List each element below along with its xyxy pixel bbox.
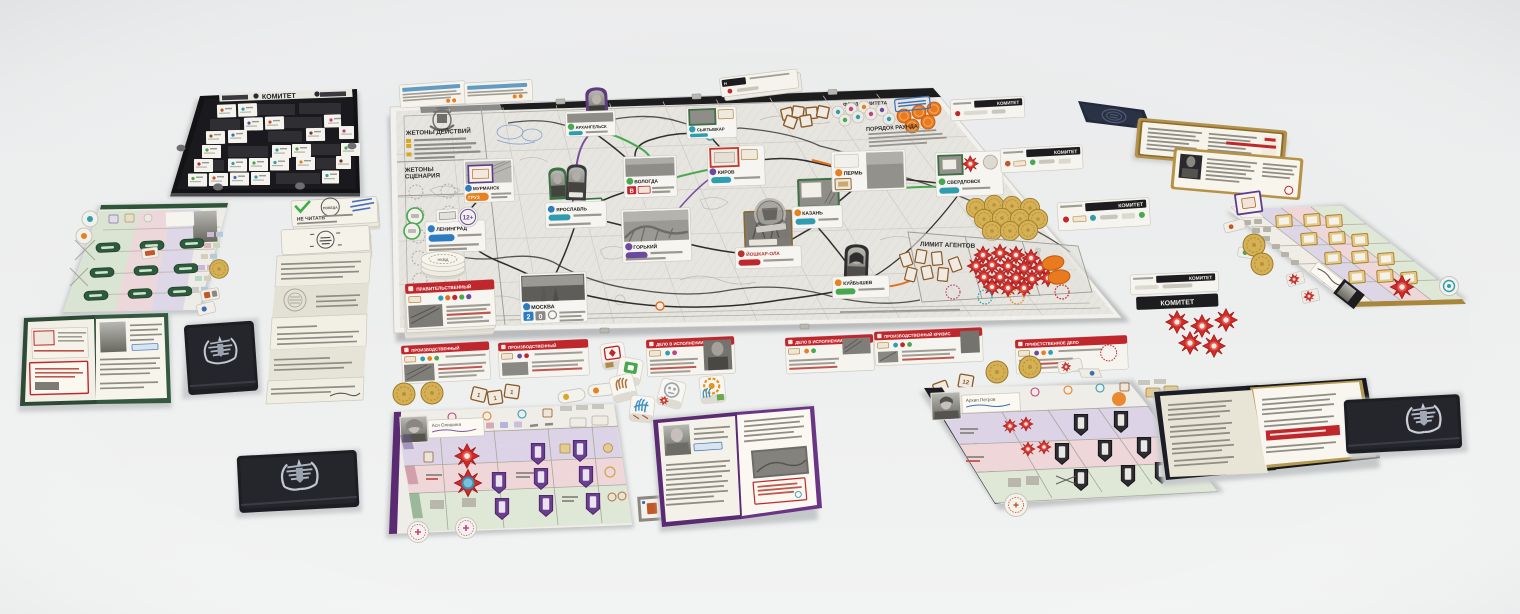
svg-text:ВОЛОГДА: ВОЛОГДА [634, 179, 658, 186]
svg-text:ГРУЗ: ГРУЗ [468, 195, 480, 200]
svg-text:СЦЕНАРИЯ: СЦЕНАРИЯ [405, 172, 441, 180]
svg-text:0: 0 [538, 314, 542, 321]
svg-text:СВЕРДЛОВСК: СВЕРДЛОВСК [947, 179, 980, 186]
svg-text:КОМИТЕТ: КОМИТЕТ [1054, 149, 1078, 156]
svg-text:КОМИТЕТ: КОМИТЕТ [1160, 299, 1195, 307]
svg-text:ПЕРМЬ: ПЕРМЬ [844, 170, 863, 177]
svg-text:2: 2 [526, 314, 530, 321]
svg-text:КОМИТЕТ: КОМИТЕТ [262, 93, 297, 101]
svg-text:ЯРОСЛАВЛЬ: ЯРОСЛАВЛЬ [556, 206, 587, 213]
svg-text:ПОБЕДА: ПОБЕДА [323, 206, 338, 211]
svg-text:НКВД: НКВД [437, 257, 448, 262]
svg-text:КАЗАНЬ: КАЗАНЬ [802, 210, 823, 217]
svg-text:МУРМАНСК: МУРМАНСК [473, 185, 500, 191]
svg-text:МОСКВА: МОСКВА [531, 304, 555, 311]
svg-text:ЛЕНИНГРАД: ЛЕНИНГРАД [436, 226, 467, 233]
svg-text:СЫКТЫВКАР: СЫКТЫВКАР [697, 126, 725, 132]
svg-text:КИРОВ: КИРОВ [718, 169, 735, 176]
svg-text:КОМИТЕТ: КОМИТЕТ [1189, 275, 1212, 282]
svg-text:12+: 12+ [463, 215, 474, 222]
